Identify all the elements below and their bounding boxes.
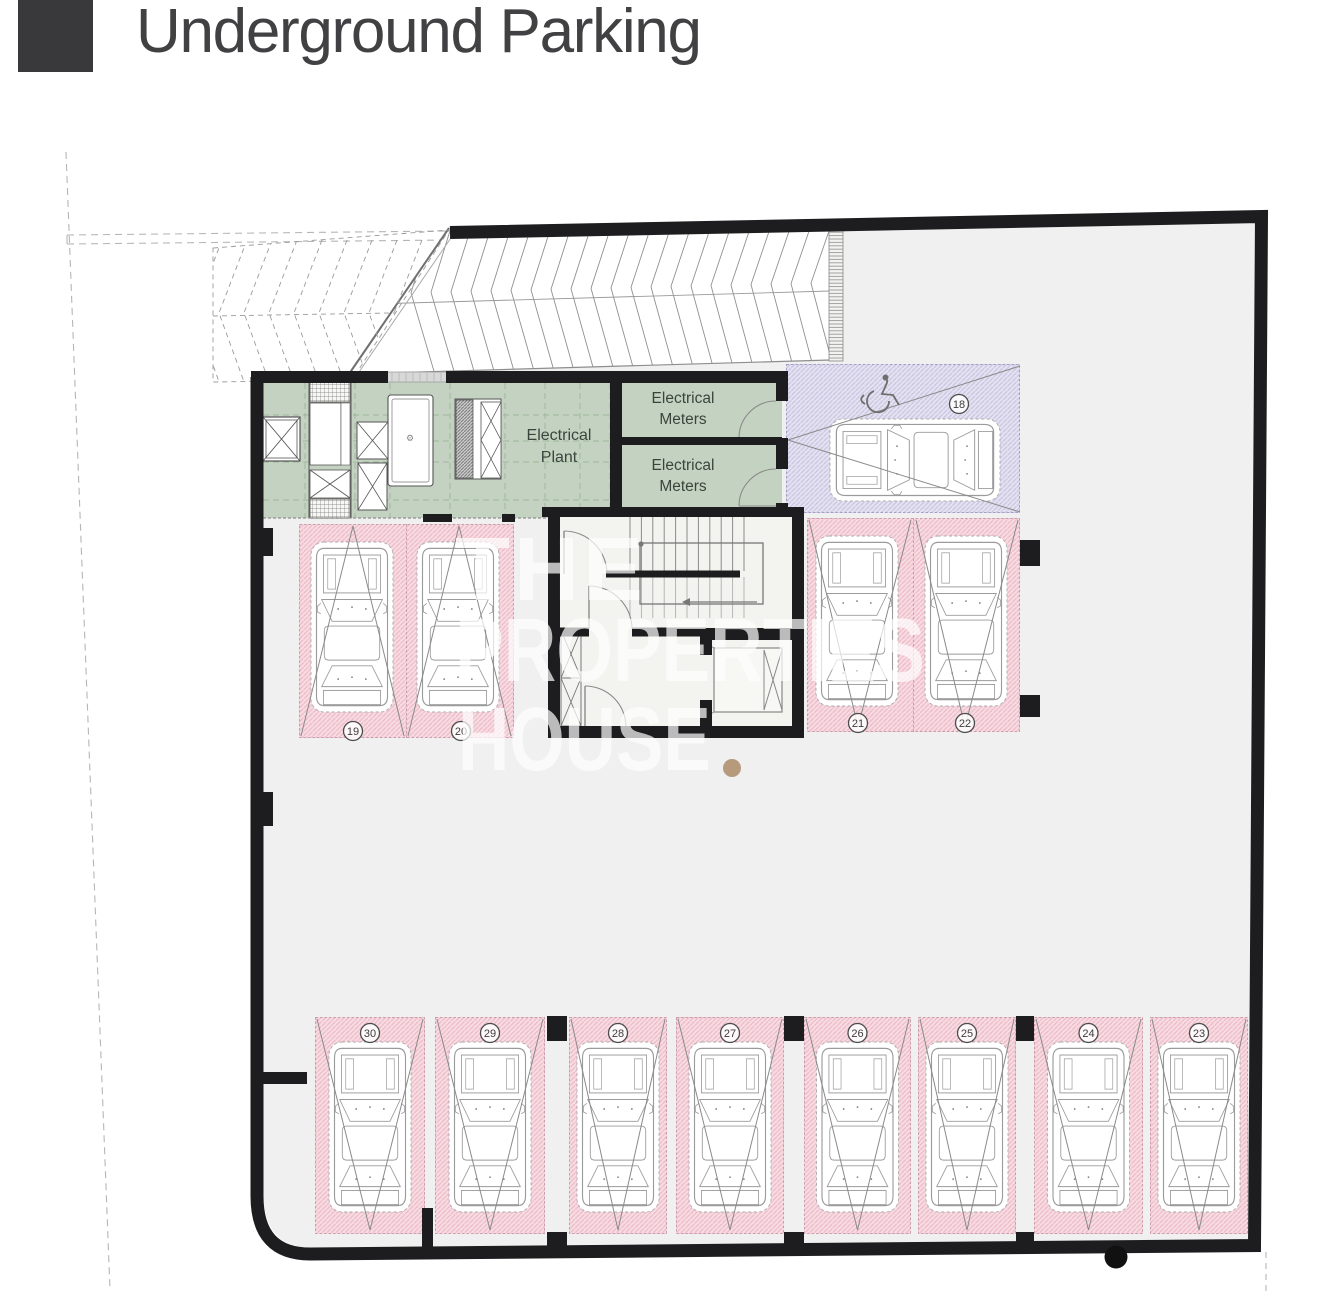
svg-text:19: 19 [347,726,359,738]
svg-text:Plant: Plant [541,449,578,466]
svg-text:23: 23 [1193,1028,1205,1040]
svg-text:Meters: Meters [659,411,707,428]
svg-text:28: 28 [612,1028,624,1040]
svg-text:30: 30 [364,1028,376,1040]
svg-text:21: 21 [852,718,864,730]
svg-text:25: 25 [961,1028,973,1040]
svg-text:Electrical: Electrical [652,390,715,407]
svg-text:26: 26 [851,1028,863,1040]
svg-text:⚙: ⚙ [406,433,414,443]
svg-text:Electrical: Electrical [652,457,715,474]
svg-text:18: 18 [953,399,965,411]
svg-text:22: 22 [959,718,971,730]
svg-text:Underground Parking: Underground Parking [136,0,701,66]
svg-text:24: 24 [1082,1028,1094,1040]
svg-text:Electrical: Electrical [527,427,592,444]
svg-text:Meters: Meters [659,478,707,495]
svg-text:PROPERTIES: PROPERTIES [455,601,925,701]
svg-text:29: 29 [484,1028,496,1040]
svg-text:HOUSE: HOUSE [458,690,711,790]
svg-text:27: 27 [724,1028,736,1040]
